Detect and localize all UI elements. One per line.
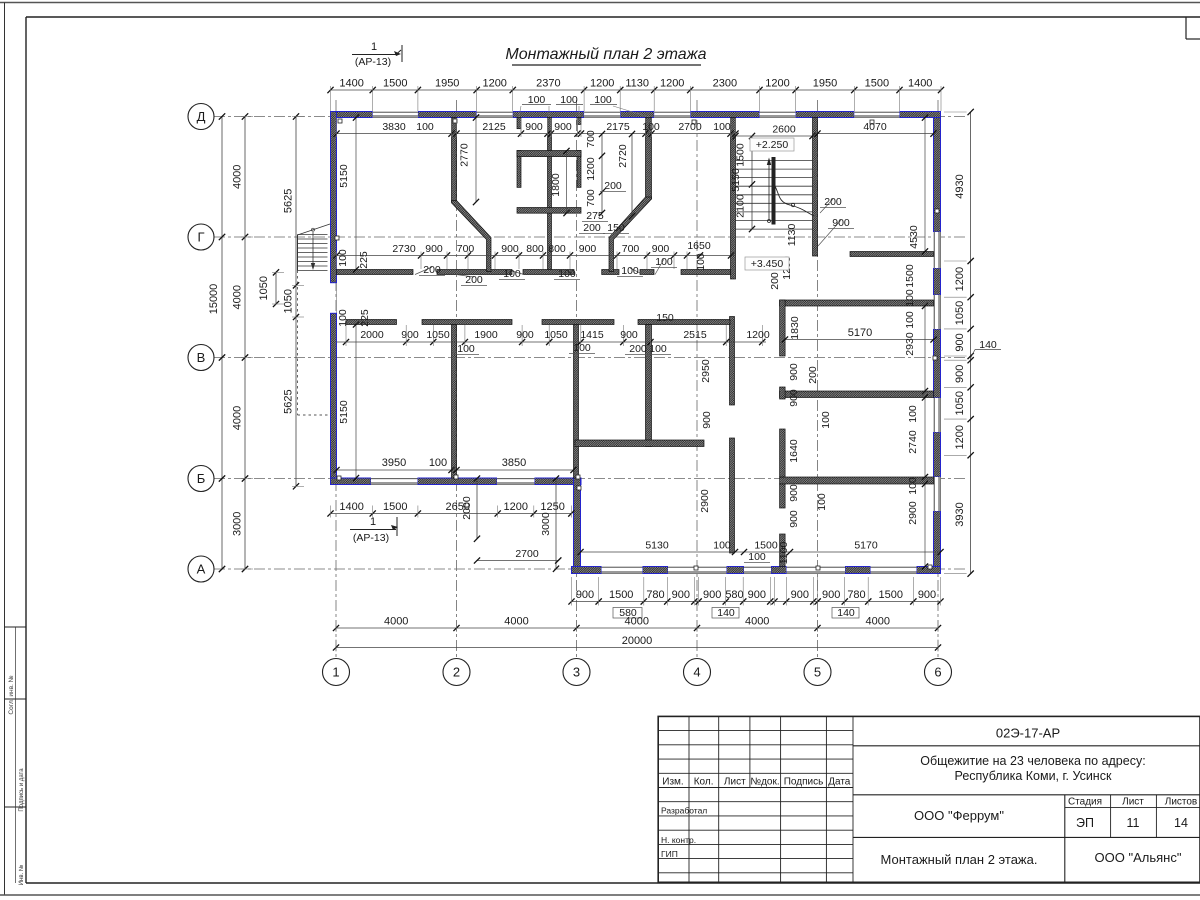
svg-text:1640: 1640 [788, 439, 800, 463]
svg-text:700: 700 [622, 243, 640, 255]
svg-text:1200: 1200 [660, 78, 684, 90]
svg-text:1500: 1500 [865, 78, 889, 90]
svg-text:1200: 1200 [954, 267, 966, 291]
svg-text:2700: 2700 [515, 548, 539, 560]
svg-text:2300: 2300 [713, 78, 737, 90]
svg-text:5: 5 [814, 665, 821, 680]
svg-text:1: 1 [371, 41, 377, 53]
svg-text:1050: 1050 [258, 276, 270, 300]
svg-text:А: А [197, 562, 206, 577]
svg-text:900: 900 [791, 589, 809, 601]
svg-text:780: 780 [847, 589, 865, 601]
svg-text:1500: 1500 [383, 501, 407, 513]
svg-text:100: 100 [573, 342, 591, 354]
svg-text:4000: 4000 [232, 285, 244, 309]
svg-text:3000: 3000 [232, 512, 244, 536]
svg-text:100: 100 [457, 343, 475, 355]
svg-text:100: 100 [429, 457, 447, 469]
svg-text:900: 900 [652, 243, 670, 255]
svg-text:1500: 1500 [735, 143, 747, 167]
svg-text:140: 140 [837, 607, 855, 619]
svg-text:1200: 1200 [746, 329, 770, 341]
svg-text:1950: 1950 [435, 78, 459, 90]
svg-text:Подпись: Подпись [784, 777, 824, 788]
svg-text:Н. контр.: Н. контр. [661, 835, 696, 845]
svg-text:900: 900 [672, 589, 690, 601]
svg-text:20000: 20000 [622, 635, 653, 647]
svg-text:1830: 1830 [789, 316, 801, 340]
svg-text:100: 100 [907, 405, 919, 423]
svg-text:4000: 4000 [866, 616, 890, 628]
svg-text:1130: 1130 [786, 224, 798, 247]
svg-text:900: 900 [748, 589, 766, 601]
svg-text:3850: 3850 [502, 457, 526, 469]
svg-text:4000: 4000 [232, 165, 244, 189]
svg-text:3950: 3950 [382, 457, 406, 469]
svg-text:6: 6 [934, 665, 941, 680]
svg-text:Листов: Листов [1165, 797, 1198, 808]
svg-text:Стадия: Стадия [1068, 797, 1102, 808]
svg-text:100: 100 [904, 311, 916, 329]
svg-text:200: 200 [769, 272, 781, 290]
svg-text:2100: 2100 [735, 194, 747, 218]
svg-text:900: 900 [788, 363, 800, 381]
svg-text:2: 2 [453, 665, 460, 680]
svg-text:2740: 2740 [907, 430, 919, 454]
svg-text:2730: 2730 [392, 243, 416, 255]
svg-text:900: 900 [554, 121, 572, 133]
svg-text:1050: 1050 [283, 289, 295, 313]
svg-text:1: 1 [332, 665, 339, 680]
svg-text:4000: 4000 [504, 616, 528, 628]
svg-text:100: 100 [713, 121, 731, 133]
svg-text:1200: 1200 [585, 157, 597, 181]
svg-text:2000: 2000 [360, 329, 384, 341]
svg-text:4: 4 [693, 665, 700, 680]
svg-text:2175: 2175 [606, 121, 630, 133]
svg-text:900: 900 [501, 243, 519, 255]
svg-text:2900: 2900 [699, 489, 711, 513]
svg-text:140: 140 [717, 607, 735, 619]
svg-text:Лист: Лист [1122, 797, 1144, 808]
svg-text:1200: 1200 [954, 425, 966, 449]
svg-text:900: 900 [701, 411, 713, 429]
svg-text:100: 100 [621, 265, 639, 277]
svg-text:1050: 1050 [544, 329, 568, 341]
svg-text:ГИП: ГИП [661, 849, 678, 859]
svg-text:2900: 2900 [907, 501, 919, 525]
svg-text:(АР-13): (АР-13) [355, 56, 391, 68]
svg-text:900: 900 [516, 329, 534, 341]
svg-text:1950: 1950 [813, 78, 837, 90]
svg-text:4000: 4000 [232, 406, 244, 430]
svg-text:4000: 4000 [745, 616, 769, 628]
svg-text:5150: 5150 [730, 168, 742, 192]
svg-text:1200: 1200 [590, 78, 614, 90]
svg-text:900: 900 [954, 365, 966, 383]
svg-text:900: 900 [525, 121, 543, 133]
svg-text:100: 100 [907, 477, 919, 495]
svg-text:100: 100 [337, 249, 349, 267]
svg-text:ООО "Феррум": ООО "Феррум" [914, 808, 1004, 823]
svg-text:900: 900 [401, 329, 419, 341]
svg-text:Г: Г [197, 230, 204, 245]
svg-text:2370: 2370 [536, 78, 560, 90]
svg-text:+2.250: +2.250 [756, 139, 789, 151]
svg-text:5625: 5625 [283, 389, 295, 413]
svg-text:4070: 4070 [863, 121, 887, 133]
svg-text:Инв. №: Инв. № [18, 865, 25, 886]
svg-text:1200: 1200 [765, 78, 789, 90]
svg-text:900: 900 [576, 589, 594, 601]
svg-text:900: 900 [822, 589, 840, 601]
svg-text:14: 14 [1174, 816, 1188, 830]
svg-text:2930: 2930 [904, 332, 916, 356]
svg-text:200: 200 [423, 264, 441, 276]
svg-text:15000: 15000 [208, 284, 220, 315]
svg-text:02Э-17-АР: 02Э-17-АР [996, 726, 1060, 741]
svg-text:2700: 2700 [678, 121, 702, 133]
svg-text:800: 800 [548, 243, 566, 255]
svg-text:100: 100 [748, 551, 766, 563]
svg-text:3: 3 [573, 665, 580, 680]
svg-text:200: 200 [807, 366, 819, 384]
svg-text:4530: 4530 [908, 225, 920, 249]
svg-text:1100: 1100 [778, 542, 790, 565]
svg-text:5170: 5170 [854, 540, 878, 552]
svg-text:№док.: №док. [750, 777, 779, 788]
svg-text:1200: 1200 [482, 78, 506, 90]
svg-text:900: 900 [954, 333, 966, 351]
svg-text:900: 900 [918, 589, 936, 601]
svg-text:200: 200 [465, 274, 483, 286]
svg-text:100: 100 [904, 289, 916, 307]
svg-text:1500: 1500 [904, 264, 916, 288]
svg-text:Изм.: Изм. [662, 777, 683, 788]
svg-text:700: 700 [585, 189, 597, 207]
svg-text:1130: 1130 [625, 78, 649, 90]
svg-text:1050: 1050 [426, 329, 450, 341]
svg-text:2950: 2950 [700, 359, 712, 383]
svg-text:Республика Коми, г. Усинск: Республика Коми, г. Усинск [955, 769, 1112, 783]
svg-text:Монтажный план 2 этажа.: Монтажный план 2 этажа. [881, 852, 1038, 867]
svg-text:4000: 4000 [625, 616, 649, 628]
svg-text:275: 275 [586, 210, 604, 222]
svg-text:4930: 4930 [954, 174, 966, 198]
svg-text:100: 100 [713, 540, 731, 552]
svg-text:700: 700 [457, 243, 475, 255]
svg-text:2600: 2600 [772, 124, 796, 136]
svg-text:Б: Б [197, 471, 206, 486]
svg-text:3000: 3000 [540, 512, 552, 536]
svg-text:100: 100 [337, 309, 349, 327]
svg-text:200: 200 [629, 343, 647, 355]
svg-text:200: 200 [824, 196, 842, 208]
svg-text:200: 200 [604, 180, 622, 192]
svg-text:4000: 4000 [384, 616, 408, 628]
svg-text:100: 100 [503, 268, 521, 280]
svg-text:900: 900 [703, 589, 721, 601]
svg-text:780: 780 [646, 589, 664, 601]
svg-text:700: 700 [585, 130, 597, 148]
svg-text:5170: 5170 [848, 327, 872, 339]
svg-text:900: 900 [425, 243, 443, 255]
svg-text:3930: 3930 [954, 502, 966, 526]
svg-text:580: 580 [725, 589, 743, 601]
svg-text:2000: 2000 [461, 496, 473, 520]
svg-text:ЭП: ЭП [1076, 816, 1094, 830]
svg-text:100: 100 [695, 253, 707, 271]
svg-text:2125: 2125 [482, 121, 506, 133]
svg-text:900: 900 [832, 217, 850, 229]
svg-text:900: 900 [788, 389, 800, 407]
svg-text:100: 100 [816, 493, 828, 511]
svg-text:100: 100 [416, 121, 434, 133]
svg-text:2770: 2770 [459, 143, 471, 167]
svg-text:1500: 1500 [754, 540, 778, 552]
svg-text:1650: 1650 [687, 240, 711, 252]
svg-text:150: 150 [607, 222, 625, 234]
svg-text:100: 100 [649, 343, 667, 355]
svg-text:Д: Д [197, 109, 206, 124]
svg-text:100: 100 [558, 268, 576, 280]
svg-text:5625: 5625 [283, 189, 295, 213]
svg-text:В: В [197, 350, 206, 365]
svg-text:1500: 1500 [879, 589, 903, 601]
svg-text:800: 800 [526, 243, 544, 255]
svg-text:1415: 1415 [580, 329, 604, 341]
svg-text:900: 900 [579, 243, 597, 255]
svg-text:Дата: Дата [828, 777, 851, 788]
svg-text:900: 900 [620, 329, 638, 341]
svg-text:1: 1 [370, 516, 376, 528]
svg-text:1900: 1900 [474, 329, 498, 341]
svg-text:11: 11 [1127, 816, 1140, 830]
svg-text:200: 200 [583, 222, 601, 234]
svg-text:3830: 3830 [382, 121, 406, 133]
svg-text:Кол.: Кол. [694, 777, 714, 788]
svg-text:1400: 1400 [908, 78, 932, 90]
svg-text:5150: 5150 [338, 400, 350, 424]
svg-text:1500: 1500 [383, 78, 407, 90]
svg-text:ООО "Альянс": ООО "Альянс" [1095, 850, 1182, 865]
svg-text:2515: 2515 [683, 329, 707, 341]
svg-text:Разработал: Разработал [661, 806, 707, 816]
svg-text:150: 150 [656, 312, 674, 324]
svg-text:1050: 1050 [954, 391, 966, 415]
svg-text:1250: 1250 [540, 501, 564, 513]
svg-text:225: 225 [358, 251, 370, 269]
svg-text:Лист: Лист [724, 777, 746, 788]
svg-text:1400: 1400 [339, 78, 363, 90]
svg-text:1050: 1050 [954, 301, 966, 325]
svg-text:1800: 1800 [550, 173, 562, 197]
svg-text:(АР-13): (АР-13) [353, 532, 389, 544]
svg-text:5130: 5130 [645, 540, 669, 552]
svg-text:5150: 5150 [338, 164, 350, 188]
svg-text:2720: 2720 [617, 144, 629, 168]
svg-text:Общежитие на 23 человека по ад: Общежитие на 23 человека по адресу: [920, 754, 1145, 768]
svg-text:1200: 1200 [504, 501, 528, 513]
svg-text:1500: 1500 [609, 589, 633, 601]
svg-text:225: 225 [359, 309, 371, 327]
svg-text:900: 900 [788, 484, 800, 502]
svg-text:Подпись и дата: Подпись и дата [19, 768, 25, 812]
svg-text:Согл. инв. №: Согл. инв. № [8, 675, 15, 714]
svg-text:+3.450: +3.450 [751, 258, 784, 270]
svg-text:100: 100 [655, 256, 673, 268]
svg-text:900: 900 [788, 510, 800, 528]
svg-text:Монтажный план 2 этажа: Монтажный план 2 этажа [505, 46, 706, 63]
svg-text:100: 100 [820, 411, 832, 429]
svg-text:1400: 1400 [339, 501, 363, 513]
svg-text:100: 100 [642, 121, 660, 133]
